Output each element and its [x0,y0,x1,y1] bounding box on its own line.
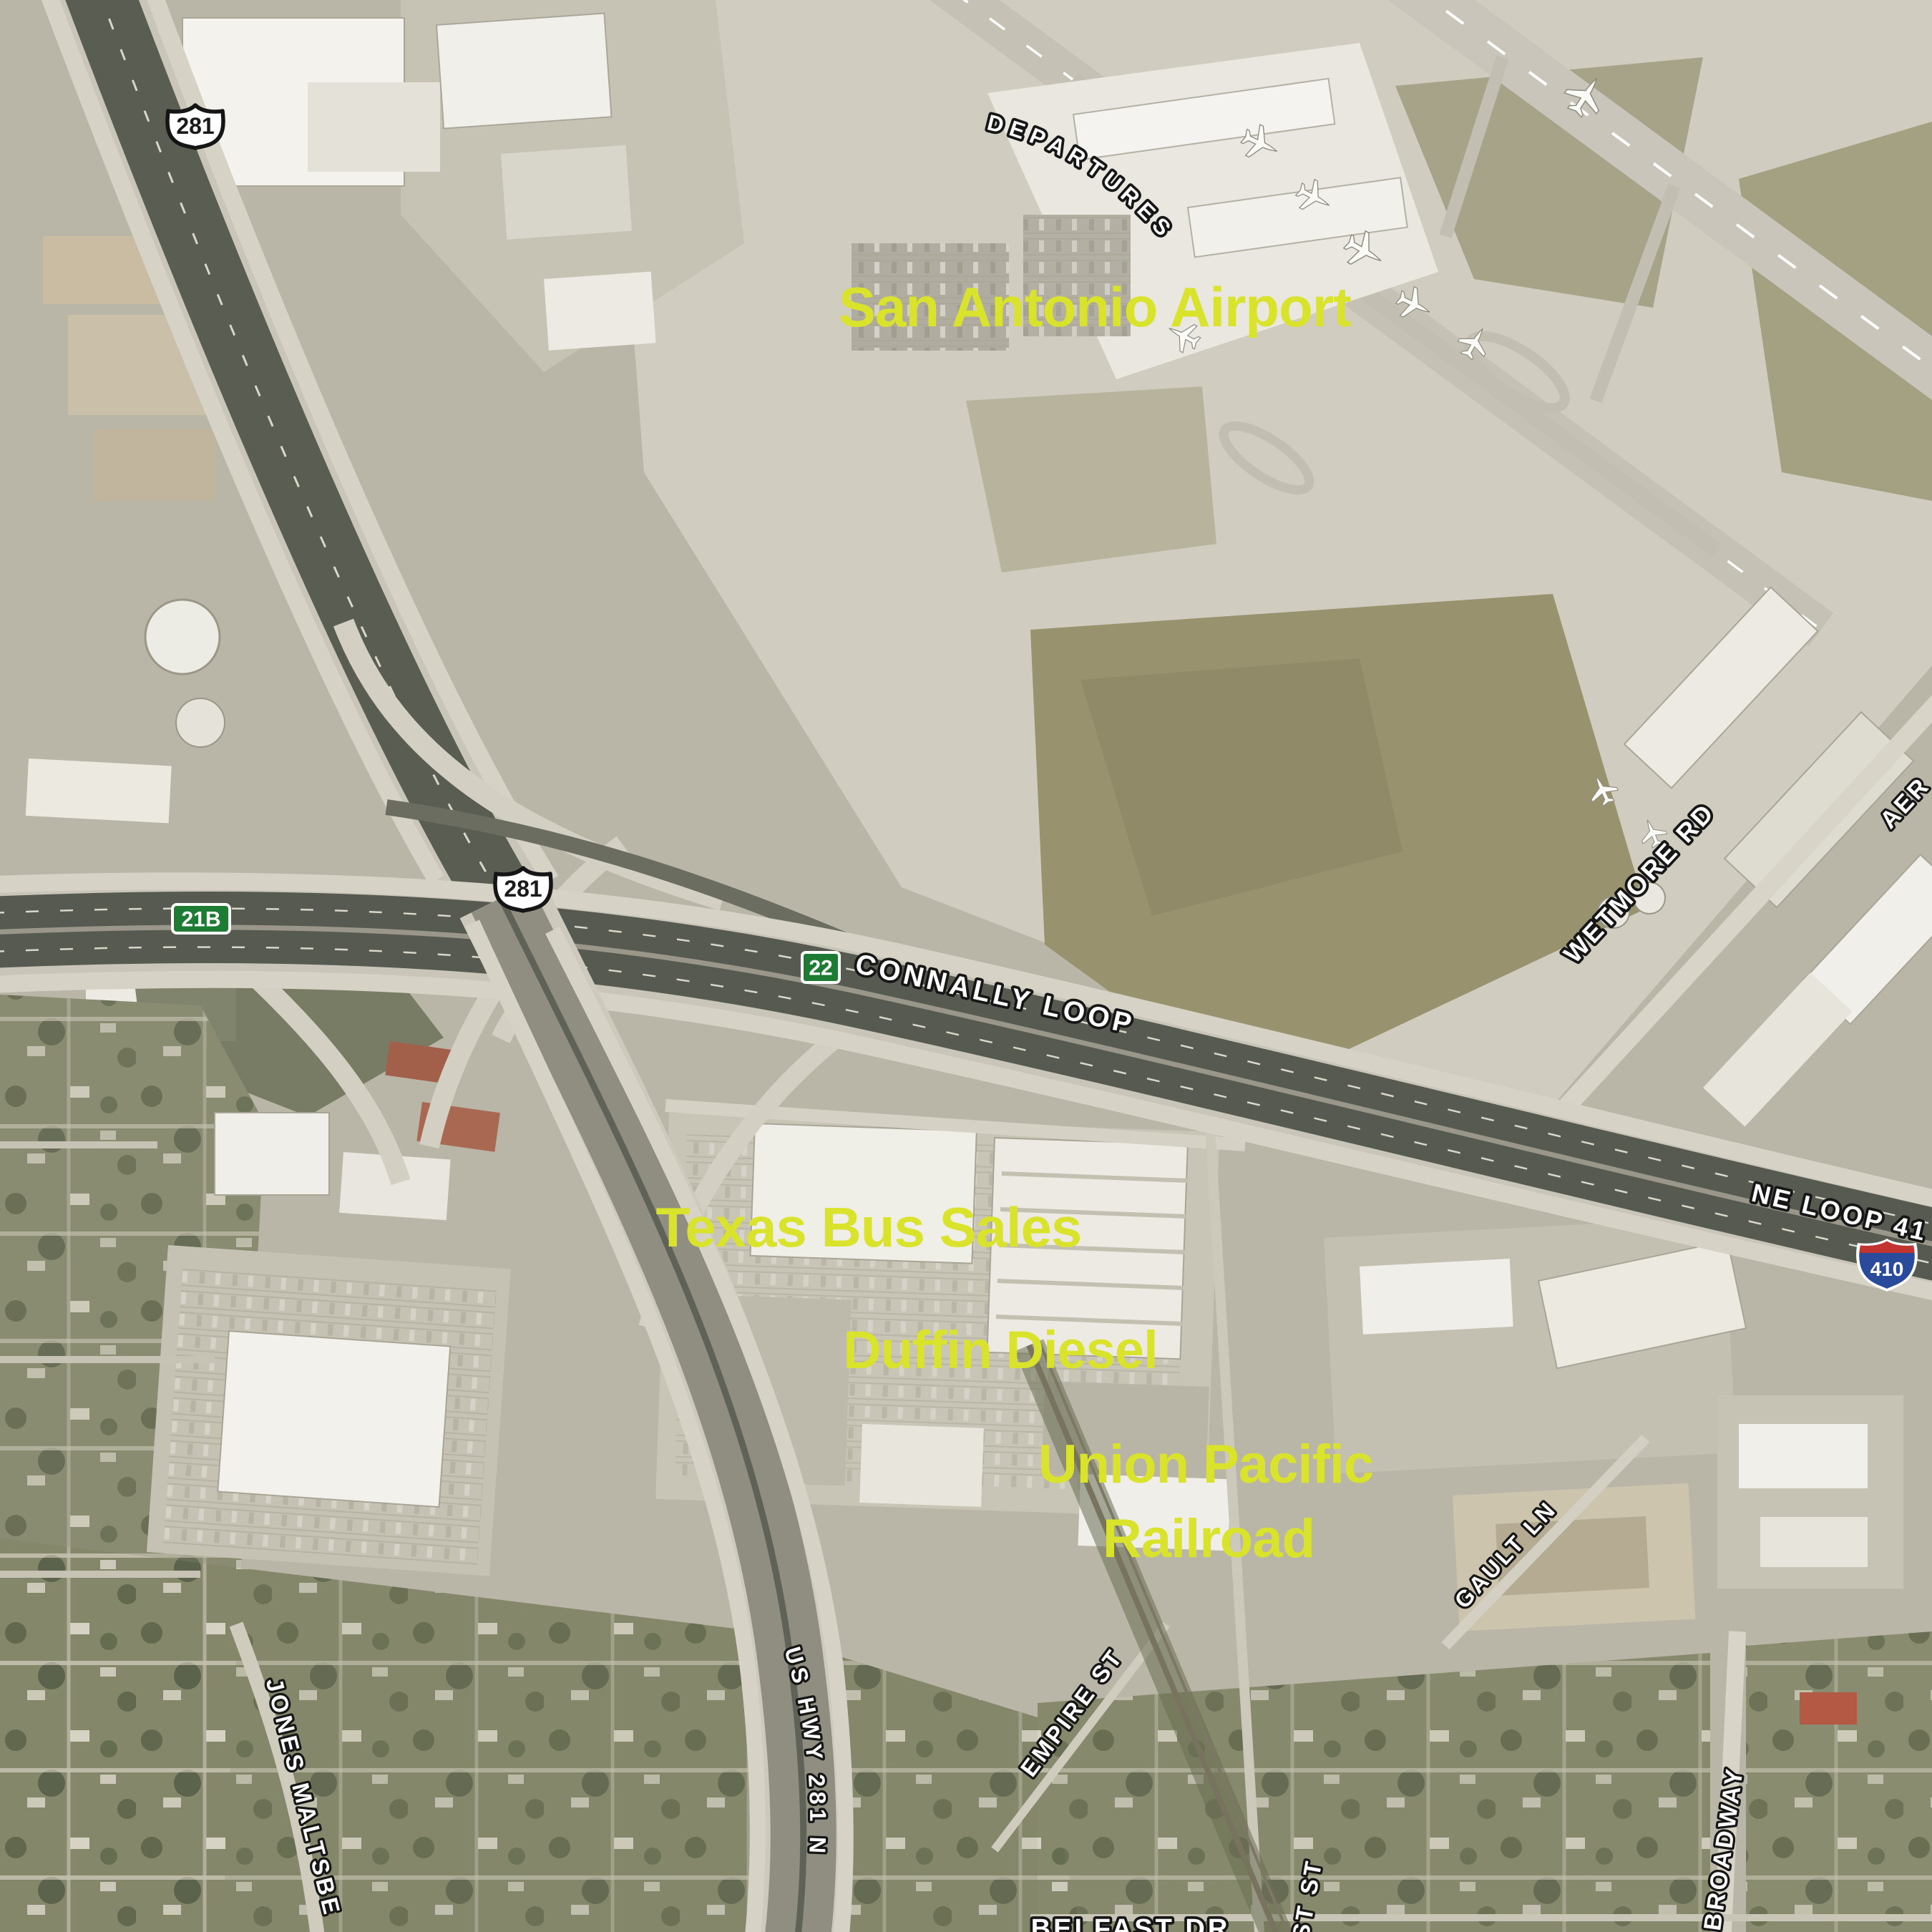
exit-sign-21b: 21B [172,904,230,933]
exit-sign-22: 22 [802,952,839,982]
svg-text:281: 281 [176,113,214,139]
svg-text:410: 410 [1870,1258,1904,1280]
place-label-texas-bus-sales: Texas Bus Sales [656,1196,1082,1259]
us-281-shield-interchange: 281 [495,868,551,911]
satellite-map: DEPARTURES CONNALLY LOOP WETMORE RD NE L… [0,0,1932,1932]
map-canvas[interactable]: DEPARTURES CONNALLY LOOP WETMORE RD NE L… [0,0,1932,1932]
place-label-san-antonio-airport: San Antonio Airport [839,275,1352,338]
road-label-belfast-dr: BELFAST DR [1031,1914,1231,1932]
place-label-duffin-diesel: Duffin Diesel [843,1320,1157,1380]
svg-text:21B: 21B [181,908,220,932]
svg-text:281: 281 [504,876,542,902]
storage-dome [145,600,220,674]
svg-text:22: 22 [809,957,832,980]
place-label-union-pacific-line2: Railroad [1103,1508,1314,1569]
place-label-union-pacific-line1: Union Pacific [1038,1434,1373,1495]
us-281-shield-north: 281 [167,105,223,148]
